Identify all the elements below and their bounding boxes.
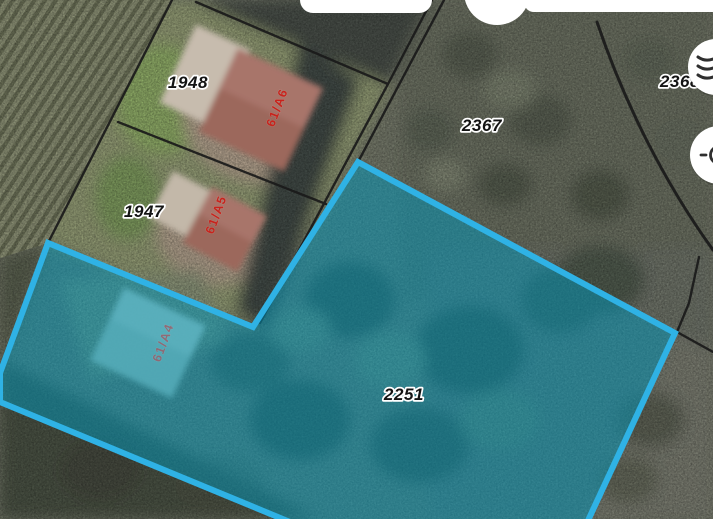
parcel-label-2251: 2251 [383, 385, 424, 404]
map-viewport[interactable]: 61/A6 61/A5 61/A4 2251 1948 1947 2367 23… [0, 0, 713, 519]
parcel-label-2367: 2367 [461, 116, 503, 135]
top-bar-fragment-left [300, 0, 432, 13]
top-bar-fragment-right [524, 0, 713, 12]
parcel-label-1947: 1947 [124, 202, 165, 221]
parcel-label-1948: 1948 [168, 73, 208, 92]
